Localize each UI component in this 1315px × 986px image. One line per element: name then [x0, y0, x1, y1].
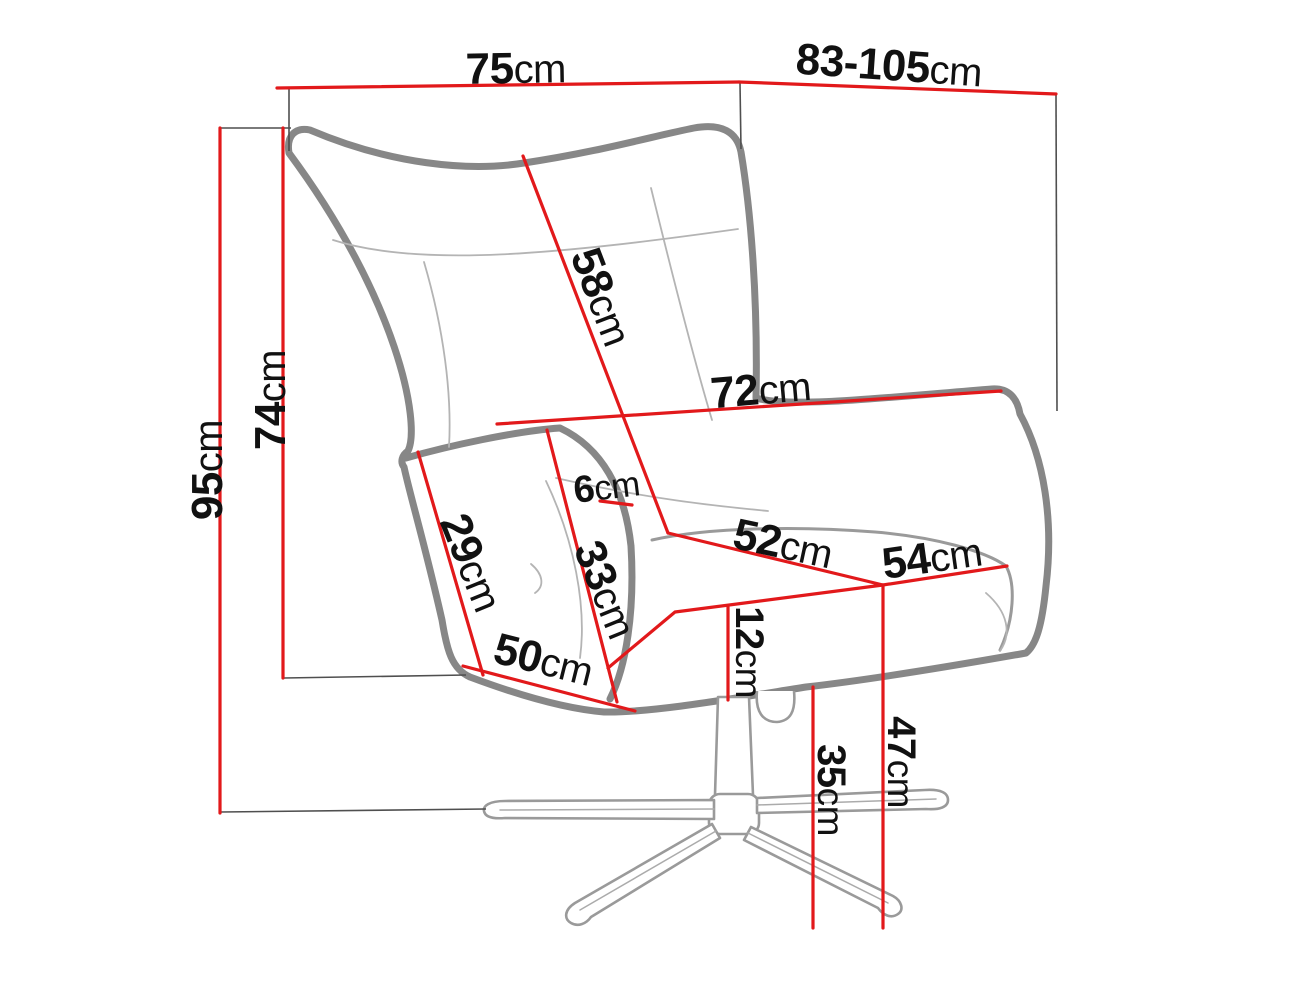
dim-label-47: 47cm — [879, 716, 923, 808]
ext-overall-height-horizontal — [221, 809, 486, 812]
dim-unit-95: cm — [187, 420, 231, 472]
dim-unit-35: cm — [810, 788, 851, 836]
dim-value-72: 72 — [709, 365, 761, 418]
dim-value-83-105: 83-105 — [794, 35, 931, 93]
dim-unit-54: cm — [927, 530, 985, 581]
dim-unit-6: cm — [592, 464, 642, 508]
dim-value-74: 74 — [246, 401, 295, 450]
leg-ridge-front-right — [748, 833, 888, 903]
base-column — [715, 697, 753, 795]
dim-unit-47: cm — [880, 760, 921, 808]
dim-value-54: 54 — [879, 534, 934, 589]
leg-ridge-left — [500, 809, 714, 810]
dim-label-83-105: 83-105cm — [794, 35, 983, 97]
dim-label-12: 12cm — [727, 606, 771, 698]
swivel-base-group — [484, 691, 948, 925]
dim-unit-72: cm — [757, 365, 813, 413]
dimension-diagram: 75cm 83-105cm 95cm 74cm 58cm 72cm 6cm 29… — [0, 0, 1315, 986]
dim-unit-75: cm — [513, 47, 566, 92]
ext-back-height-horizontal — [284, 675, 466, 678]
dim-unit-74: cm — [250, 350, 294, 402]
ext-top-middle-vertical — [740, 83, 741, 149]
chair-outline-group — [288, 127, 1048, 712]
dim-unit-83-105: cm — [928, 48, 983, 96]
base-leg-front-left — [566, 824, 720, 925]
dim-value-47: 47 — [879, 716, 923, 760]
dim-label-75: 75cm — [465, 43, 566, 94]
dim-value-95: 95 — [183, 472, 232, 520]
dim-label-35: 35cm — [809, 744, 853, 836]
chair-silhouette — [288, 127, 1048, 712]
dim-label-74: 74cm — [246, 350, 295, 450]
dim-label-72: 72cm — [709, 361, 813, 419]
dim-label-95: 95cm — [183, 420, 232, 520]
dim-value-35: 35 — [809, 744, 853, 788]
dim-value-75: 75 — [465, 44, 514, 94]
dim-value-12: 12 — [727, 606, 771, 650]
ext-top-right-vertical — [1056, 95, 1057, 411]
base-leg-front-right — [744, 827, 901, 916]
dim-unit-12: cm — [728, 650, 769, 698]
armchair-dimension-drawing: 75cm 83-105cm 95cm 74cm 58cm 72cm 6cm 29… — [0, 0, 1315, 986]
leg-ridge-front-left — [580, 831, 716, 910]
